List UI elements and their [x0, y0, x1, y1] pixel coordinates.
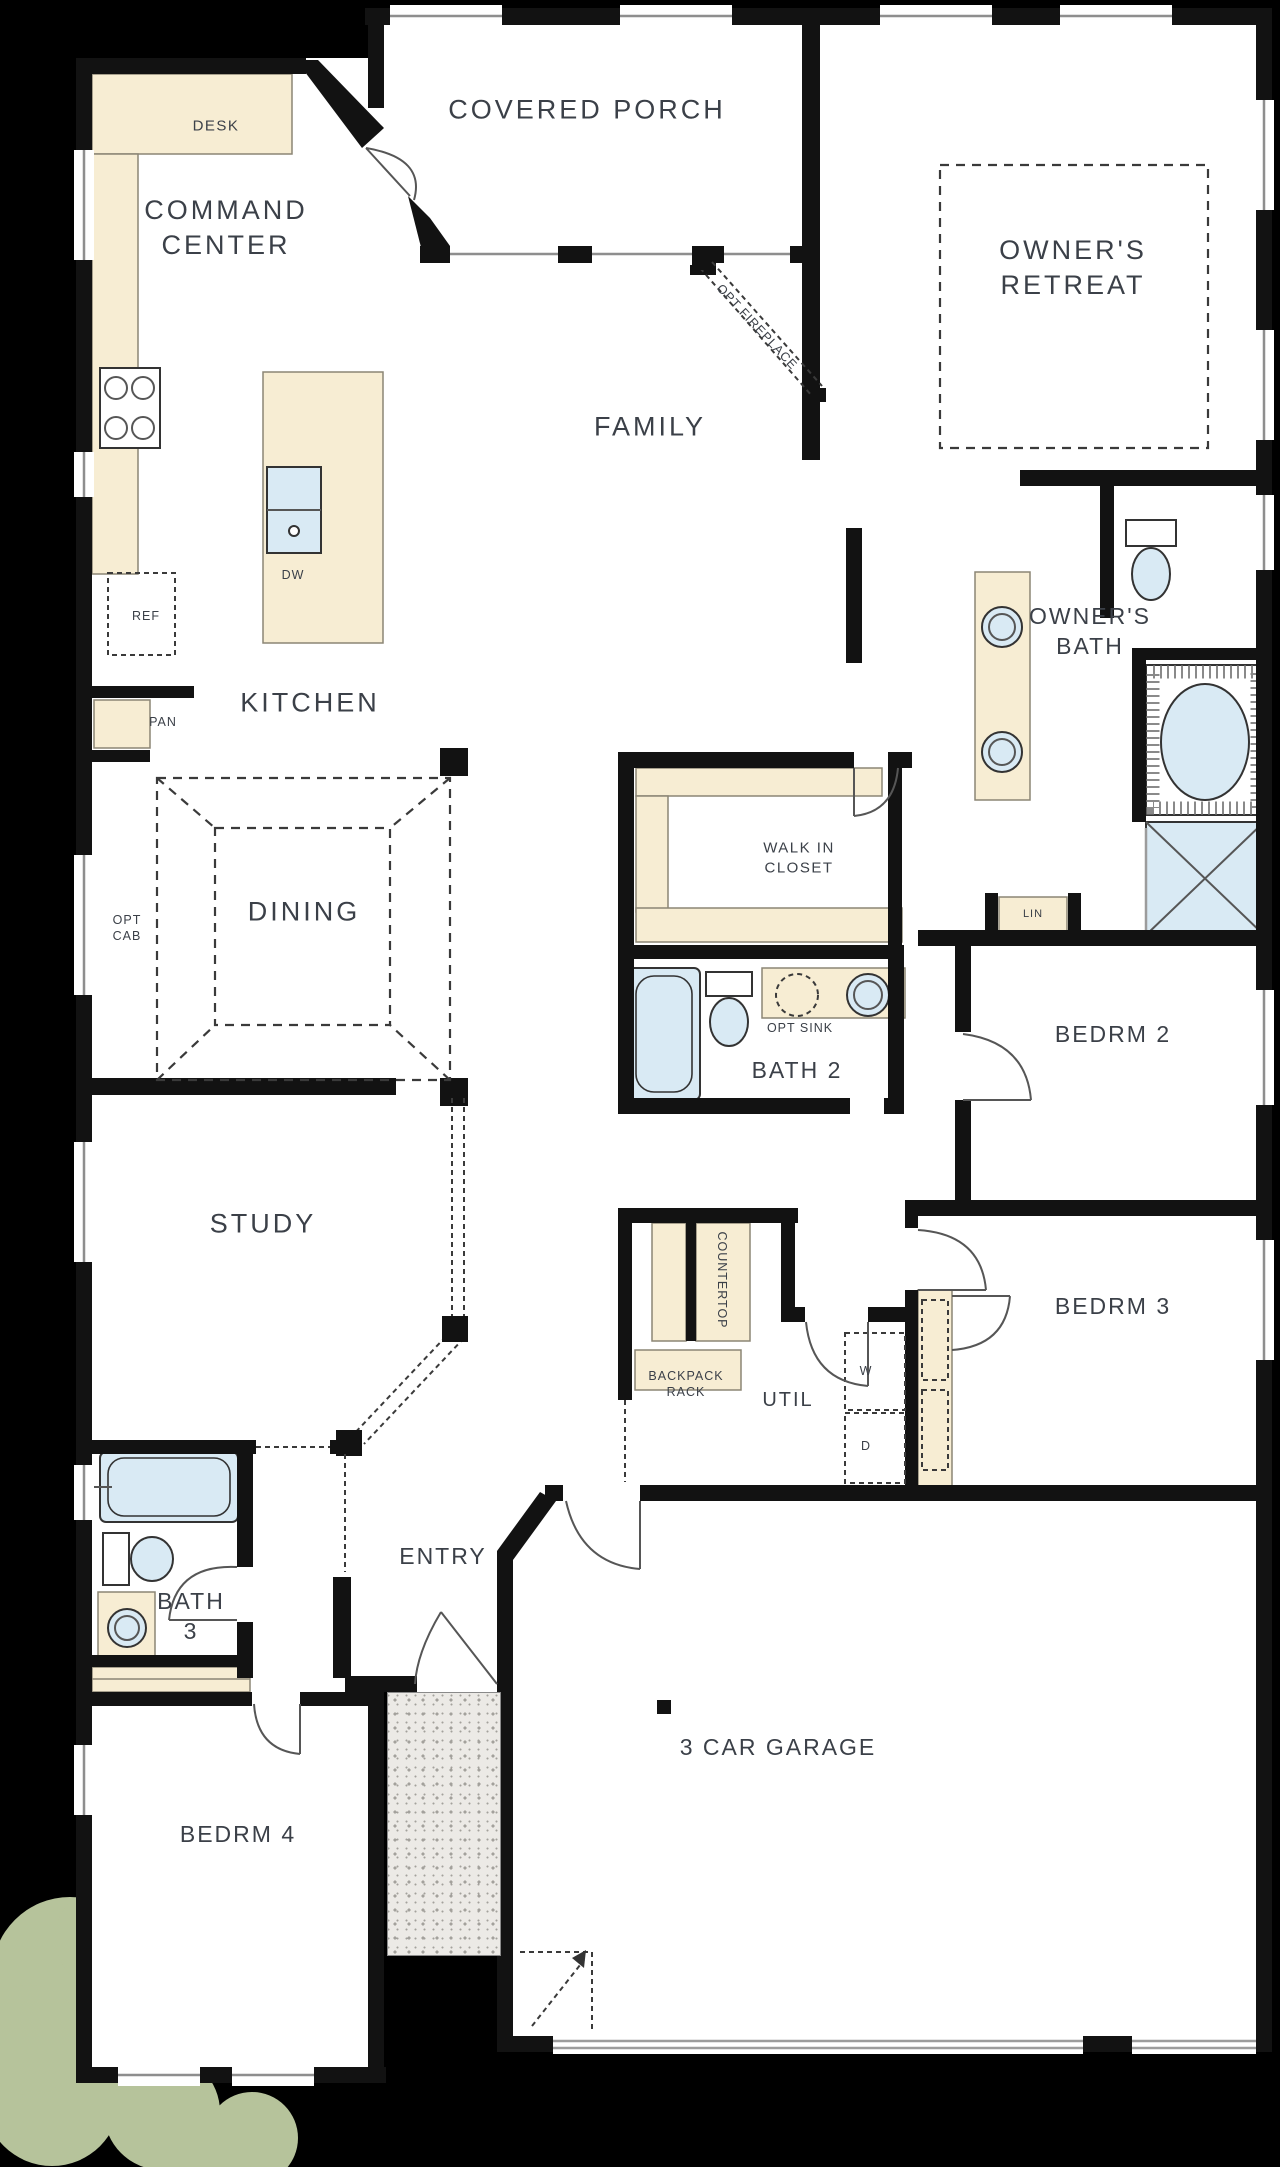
entry-stoop [387, 1692, 501, 1956]
cooktop-icon [100, 368, 160, 448]
dishwasher-icon [267, 467, 321, 553]
label-bath2: BATH 2 [752, 1056, 843, 1086]
label-covered-porch: COVERED PORCH [448, 92, 726, 127]
label-opt-sink: OPT SINK [767, 1020, 833, 1036]
label-bedrm4: BEDRM 4 [180, 1820, 296, 1850]
label-countertop: COUNTERTOP [714, 1231, 730, 1328]
label-walk-in-closet: WALK IN CLOSET [763, 839, 835, 878]
label-pantry: PAN [149, 714, 177, 730]
label-bedrm2: BEDRM 2 [1055, 1020, 1171, 1050]
label-backpack-rack: BACKPACK RACK [648, 1368, 723, 1401]
floor-plan: DESK COMMAND CENTER COVERED PORCH OWNER'… [0, 0, 1280, 2167]
label-bath3: BATH 3 [157, 1587, 225, 1647]
owners-shower-icon [1146, 822, 1264, 935]
label-family: FAMILY [594, 409, 706, 444]
label-linen: LIN [1023, 907, 1043, 921]
label-util: UTIL [762, 1387, 813, 1413]
label-entry: ENTRY [399, 1542, 487, 1572]
label-opt-cab: OPT CAB [113, 912, 142, 945]
label-desk: DESK [193, 116, 240, 136]
label-refrigerator: REF [132, 608, 160, 624]
label-command-center: COMMAND CENTER [144, 193, 308, 263]
label-study: STUDY [210, 1206, 317, 1241]
label-bedrm3: BEDRM 3 [1055, 1292, 1171, 1322]
garage-post [657, 1700, 671, 1714]
label-dining: DINING [248, 894, 361, 929]
label-owners-retreat: OWNER'S RETREAT [999, 233, 1147, 303]
label-dryer: D [861, 1438, 871, 1454]
bath2-tub-icon [628, 968, 700, 1100]
label-owners-bath: OWNER'S BATH [1029, 602, 1151, 662]
owners-tub-icon [1146, 665, 1264, 815]
label-garage: 3 CAR GARAGE [680, 1733, 877, 1763]
bath3-sink-icon [108, 1609, 146, 1647]
label-kitchen: KITCHEN [240, 685, 380, 720]
label-washer: W [860, 1363, 873, 1379]
label-dishwasher: DW [282, 567, 305, 583]
bath3-tub-icon [92, 1452, 238, 1522]
garage-door-lines [553, 2034, 1256, 2054]
bath2-toilet-icon [706, 972, 752, 1046]
